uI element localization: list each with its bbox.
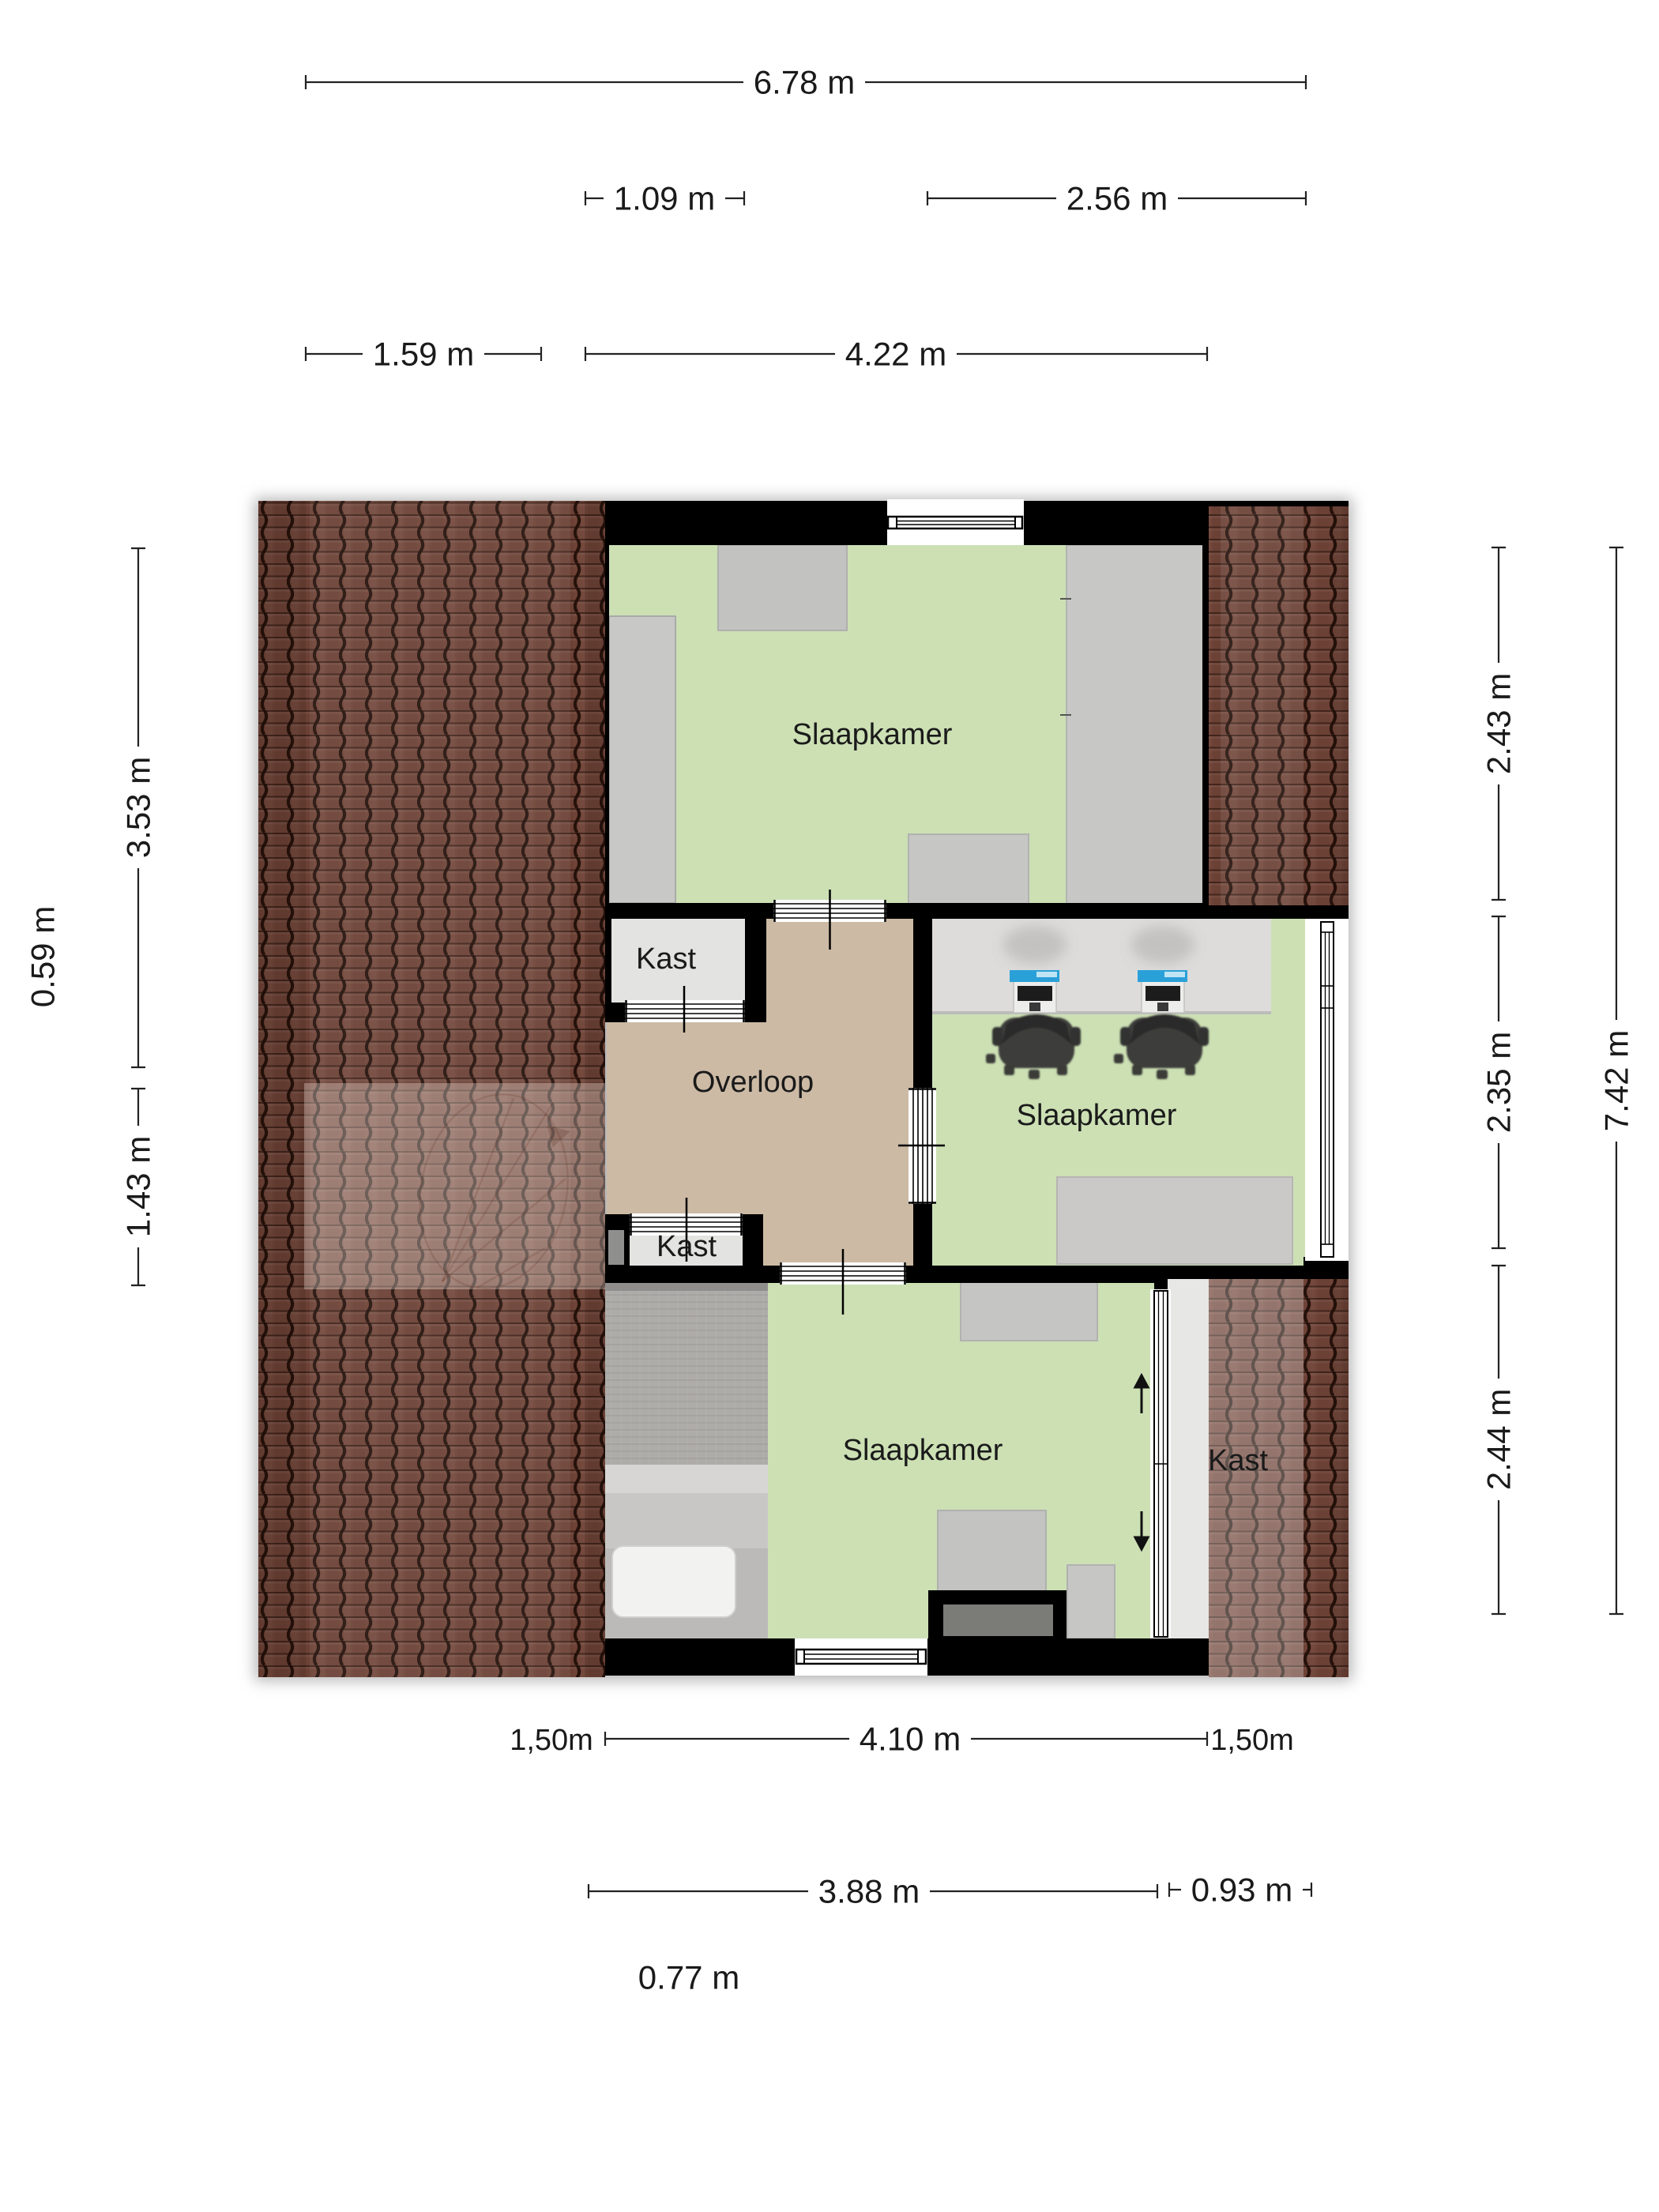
svg-text:1.09 m: 1.09 m: [614, 180, 715, 217]
svg-text:1.59 m: 1.59 m: [373, 336, 474, 373]
svg-text:Slaapkamer: Slaapkamer: [792, 718, 953, 751]
svg-text:Kast: Kast: [1208, 1444, 1268, 1477]
svg-text:2.44 m: 2.44 m: [1480, 1389, 1518, 1490]
svg-text:4.22 m: 4.22 m: [845, 336, 946, 373]
svg-text:Overloop: Overloop: [692, 1066, 814, 1099]
svg-text:Slaapkamer: Slaapkamer: [1017, 1099, 1177, 1132]
svg-text:2.43 m: 2.43 m: [1480, 673, 1518, 774]
svg-text:Slaapkamer: Slaapkamer: [843, 1434, 1003, 1467]
svg-text:1,50m: 1,50m: [510, 1724, 593, 1757]
svg-text:0.59 m: 0.59 m: [24, 906, 62, 1007]
svg-text:3.88 m: 3.88 m: [818, 1873, 920, 1910]
svg-text:0.77 m: 0.77 m: [638, 1959, 739, 1996]
svg-text:0.93 m: 0.93 m: [1191, 1872, 1292, 1909]
svg-text:6.78 m: 6.78 m: [754, 64, 855, 101]
svg-text:Kast: Kast: [656, 1230, 717, 1263]
svg-text:2.35 m: 2.35 m: [1480, 1032, 1518, 1133]
svg-text:Kast: Kast: [636, 942, 696, 976]
svg-text:1,50m: 1,50m: [1210, 1724, 1294, 1757]
svg-text:7.42 m: 7.42 m: [1598, 1030, 1635, 1131]
svg-text:4.10 m: 4.10 m: [860, 1721, 961, 1758]
svg-text:1.43 m: 1.43 m: [120, 1136, 157, 1237]
svg-text:2.56 m: 2.56 m: [1066, 180, 1168, 217]
svg-text:3.53 m: 3.53 m: [120, 757, 157, 858]
